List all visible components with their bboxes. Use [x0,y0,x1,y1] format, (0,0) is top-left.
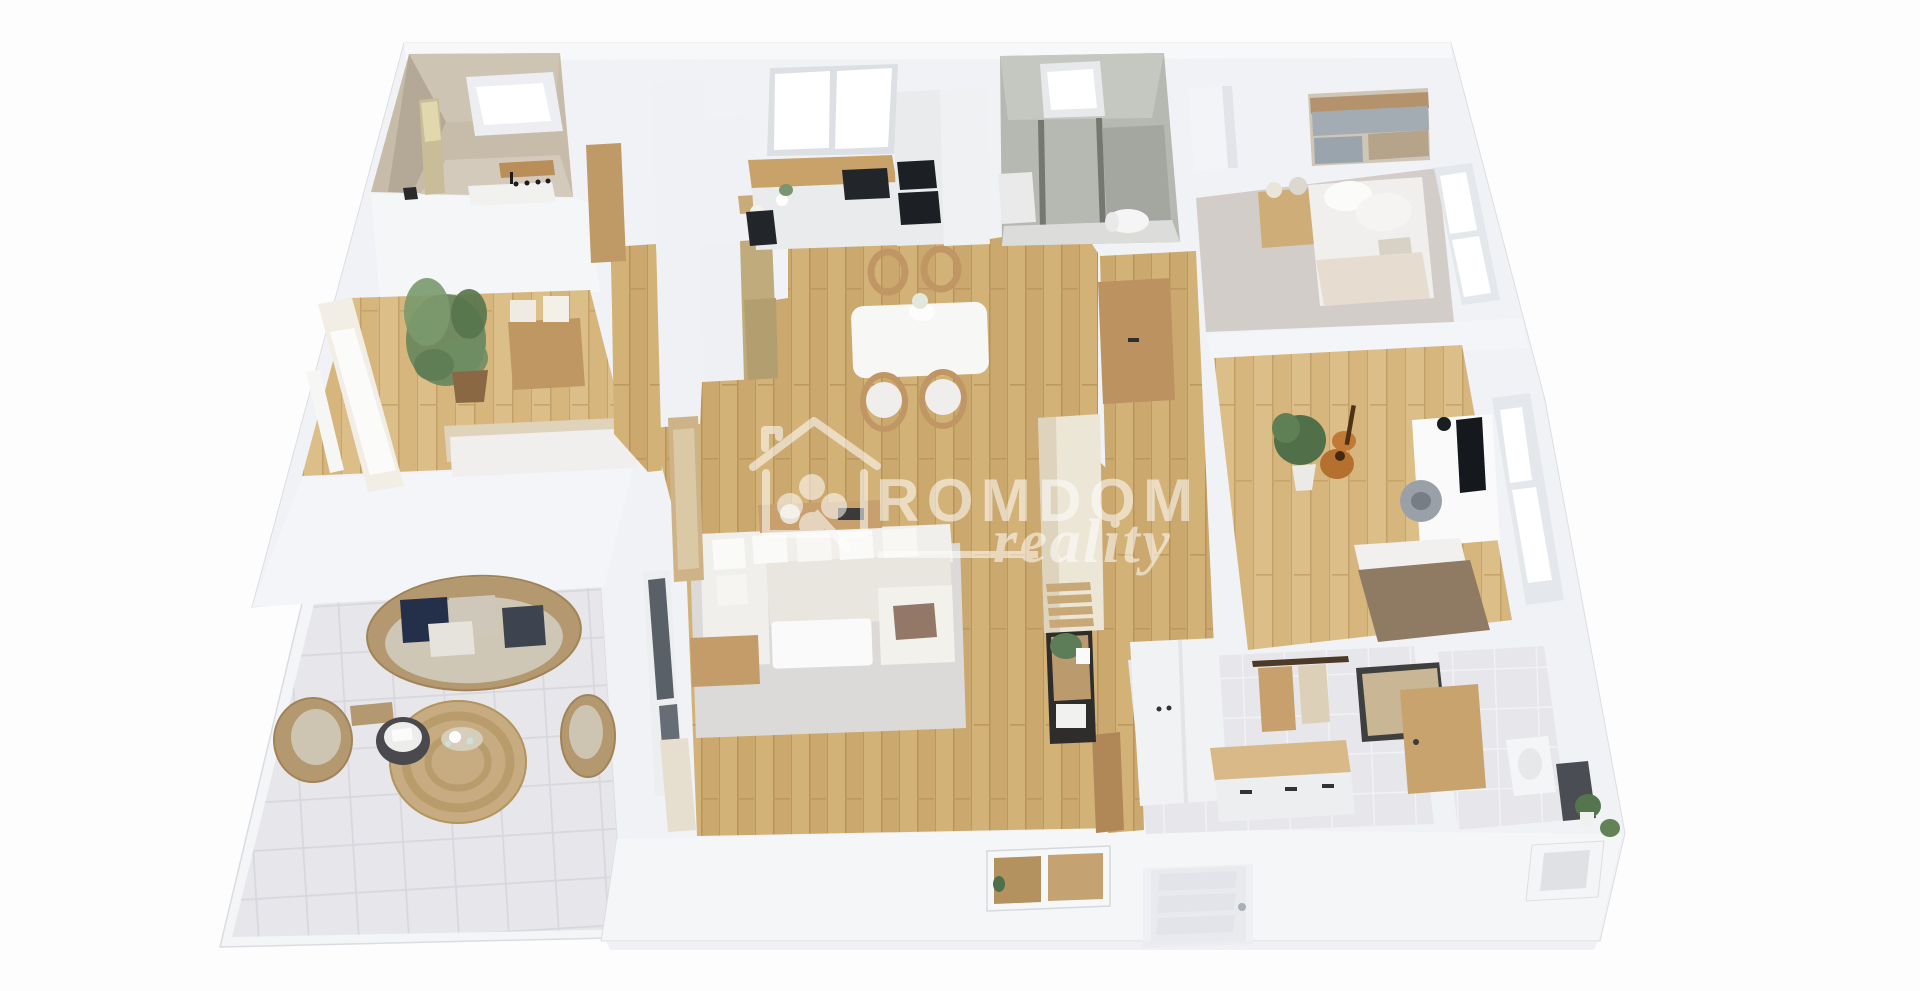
svg-text:reality: reality [993,508,1172,576]
